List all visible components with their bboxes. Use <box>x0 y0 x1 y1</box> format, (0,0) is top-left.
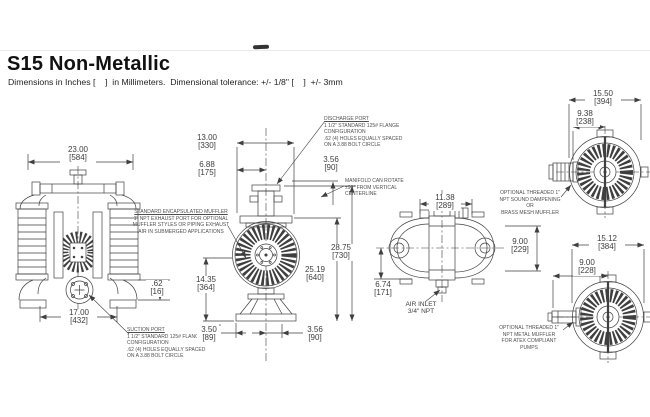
page-subtitle: Dimensions in Inches [ ] in Millimeters.… <box>8 77 343 87</box>
air-inlet-label: AIR INLET 3/4" NPT <box>398 301 444 316</box>
dim-offset-front: .62[16] <box>146 280 168 297</box>
drawing-sheet: S15 Non-Metallic Dimensions in Inches [ … <box>0 0 650 417</box>
dim-width-muffler-sound: 15.50[394] <box>585 90 621 107</box>
dim-width-muffler-atex: 15.12[384] <box>589 235 625 252</box>
manifold-rotate-note: MANIFOLD CAN ROTATE ±90° FROM VERTICAL C… <box>345 178 409 198</box>
dim-350-profile: 3.50[89] <box>197 326 221 343</box>
dim-1435-profile: 14.35[364] <box>192 276 220 293</box>
optional-atex-muffler-note: OPTIONAL THREADED 1" NPT METAL MUFFLER F… <box>494 325 564 351</box>
dim-2875-profile: 28.75[730] <box>327 244 355 261</box>
dim-depth-profile: 13.00[330] <box>192 134 222 151</box>
dim-356-bottom-profile: 3.56[90] <box>303 326 327 343</box>
optional-sound-muffler-note: OPTIONAL THREADED 1" NPT SOUND DAMPENING… <box>498 190 562 216</box>
dim-width-front: 23.00[584] <box>60 146 96 163</box>
front-view-drawing <box>16 154 246 334</box>
dim-2519-profile: 25.19[640] <box>301 266 329 283</box>
cropped-logo-remnant <box>253 45 269 50</box>
muffler-note: STANDARD ENCAPSULATED MUFFLER 1" NPT EXH… <box>130 209 232 235</box>
dim-height-top: 9.00[229] <box>506 238 534 255</box>
dim-width-top: 11.38[289] <box>429 194 461 211</box>
dim-938-muffler-sound: 9.38[238] <box>570 110 600 127</box>
header-divider <box>0 50 650 51</box>
dim-674-top: 6.74[171] <box>370 281 396 298</box>
dim-footprint-front: 17.00[432] <box>61 309 97 326</box>
page-title: S15 Non-Metallic <box>7 53 170 76</box>
dim-900-muffler-atex: 9.00[228] <box>573 259 601 276</box>
dim-688-profile: 6.88[175] <box>194 161 220 178</box>
dim-356-top-profile: 3.56[90] <box>320 156 342 173</box>
discharge-port-note: DISCHARGE PORT 1 1/2" STANDARD 125# FLAN… <box>324 116 404 149</box>
